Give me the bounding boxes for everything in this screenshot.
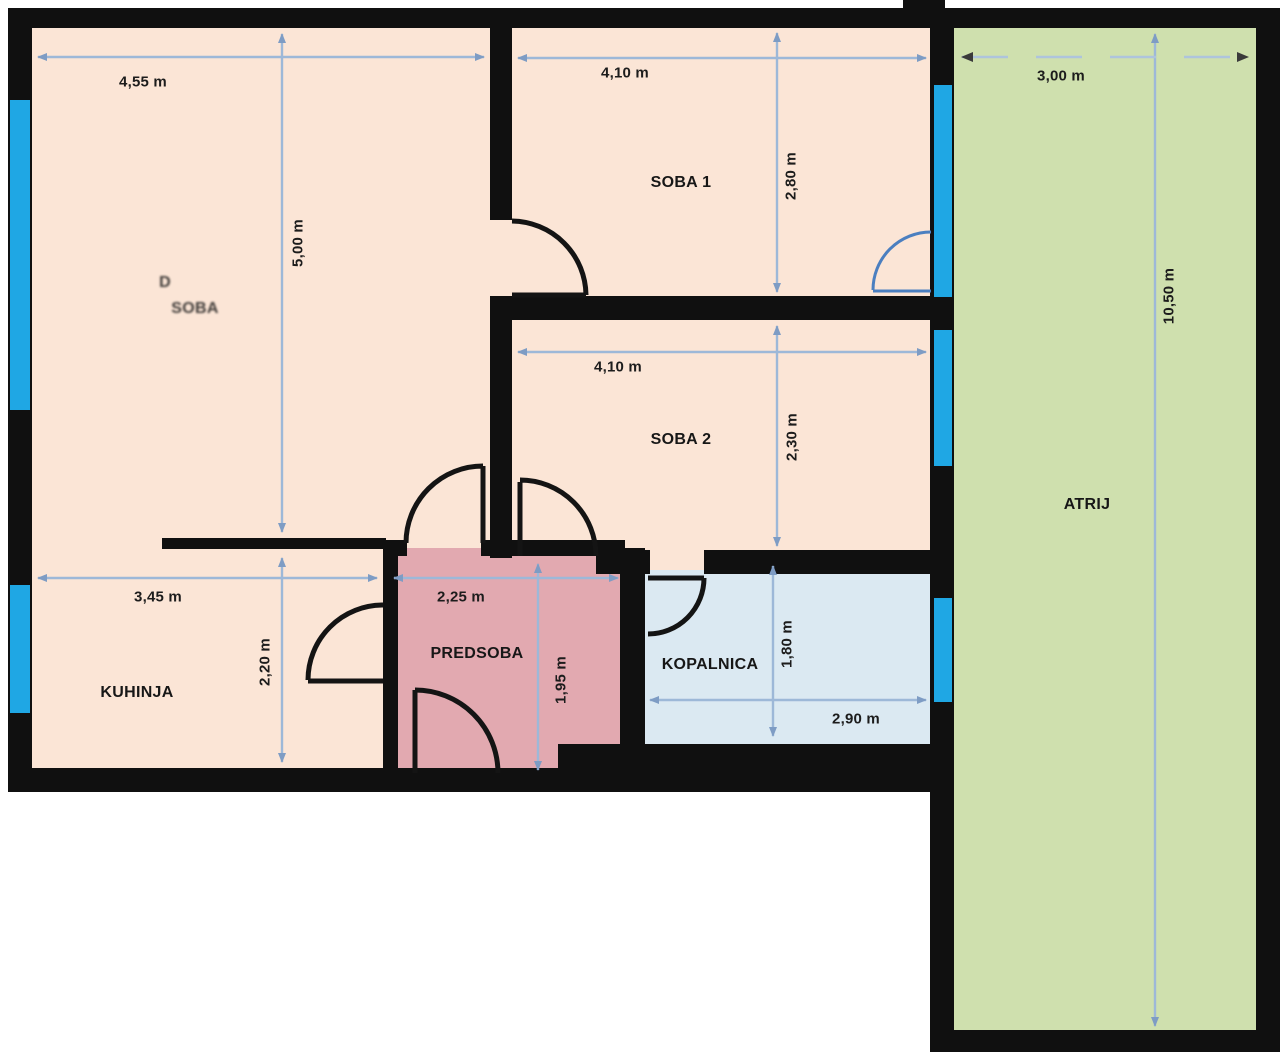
window-living-left <box>10 100 30 410</box>
dim-label-atrij-width: 3,00 m <box>1037 68 1085 85</box>
window-soba2-right <box>934 330 952 466</box>
wall-soba2-bottom-b <box>704 550 930 574</box>
dim-label-soba1-width: 4,10 m <box>601 65 649 82</box>
wall-soba1-bottom <box>512 296 930 320</box>
dim-label-soba2-height: 2,30 m <box>784 413 801 461</box>
dim-label-atrij-height: 10,50 m <box>1161 268 1178 324</box>
window-kuhinja-left <box>10 585 30 713</box>
room-label-soba1: SOBA 1 <box>651 174 712 192</box>
dim-label-predsoba-width: 2,25 m <box>437 589 485 606</box>
room-label-atrij: ATRIJ <box>1064 496 1111 514</box>
dim-label-predsoba-height: 1,95 m <box>553 656 570 704</box>
floorplan-canvas: 4,55 m 5,00 m 4,10 m 2,80 m 4,10 m 2,30 … <box>0 0 1280 1059</box>
wall-living-kitchen-divider <box>162 538 386 549</box>
dim-label-living-width: 4,55 m <box>119 74 167 91</box>
room-label-soba2: SOBA 2 <box>651 431 712 449</box>
dim-label-kuhinja-width: 3,45 m <box>134 589 182 606</box>
dim-label-soba1-height: 2,80 m <box>783 152 800 200</box>
room-label-kopalnica: KOPALNICA <box>662 656 759 674</box>
dim-label-soba2-width: 4,10 m <box>594 359 642 376</box>
window-soba1-right <box>934 85 952 297</box>
wall-top <box>8 8 1280 28</box>
wall-atrium-right <box>1256 8 1280 1052</box>
wall-bottom-left <box>8 768 588 792</box>
wall-atrium-bottom <box>930 1030 1280 1052</box>
dim-label-living-height: 5,00 m <box>290 219 307 267</box>
wall-living-soba2-lower <box>490 296 512 558</box>
window-kopalnica-right <box>934 598 952 702</box>
wall-predsoba-left <box>383 540 398 792</box>
room-label-kuhinja: KUHINJA <box>100 684 173 702</box>
wall-predsoba-kopalnica <box>620 548 645 748</box>
wall-bottom-chunk <box>558 744 940 792</box>
room-label-living-partial-bottom: SOBA <box>171 300 218 318</box>
wall-predsoba-top-b <box>481 540 625 556</box>
dim-label-kopalnica-height: 1,80 m <box>779 620 796 668</box>
room-floor-atrij <box>952 26 1258 1034</box>
dim-label-kuhinja-height: 2,20 m <box>257 638 274 686</box>
wall-living-soba1-upper <box>490 28 512 220</box>
room-label-living-partial-top: D <box>159 274 171 292</box>
dim-label-kopalnica-width: 2,90 m <box>832 711 880 728</box>
room-label-predsoba: PREDSOBA <box>430 645 523 663</box>
